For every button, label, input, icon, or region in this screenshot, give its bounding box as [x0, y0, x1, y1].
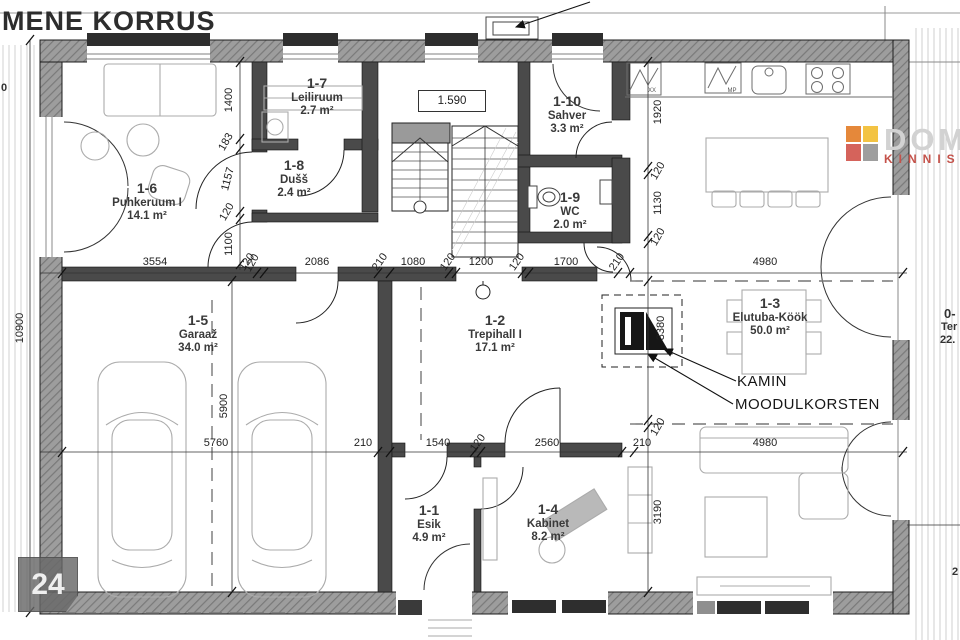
room-label-1-9: 1-9WC2.0 m² — [553, 190, 586, 231]
terrace-room-area: 22. — [940, 334, 955, 346]
dimension-label: 210 — [354, 437, 372, 449]
fireplace — [602, 295, 682, 367]
logo-square — [863, 126, 878, 142]
dimension-label: 4980 — [753, 437, 777, 449]
room-label-1-5: 1-5Garaaž34.0 m² — [178, 313, 218, 354]
room-label-1-1: 1-1Esik4.9 m² — [412, 503, 445, 544]
terrace-room-id: 0- — [944, 306, 956, 321]
floorplan-page: MENE KORRUS 1-1Esik4.9 m²1-2Trepihall I1… — [0, 0, 960, 640]
dimension-label: 4980 — [753, 256, 777, 268]
room-label-1-4: 1-4Kabinet8.2 m² — [527, 502, 569, 543]
dimension-label: 5900 — [218, 394, 230, 418]
dimension-label: 1400 — [223, 88, 235, 112]
room-label-1-10: 1-10Sahver3.3 m² — [548, 94, 586, 135]
logo-square — [846, 126, 861, 142]
wc-sink-icon — [600, 180, 612, 204]
stair-level-box: 1.590 — [418, 90, 486, 112]
logo-square — [863, 144, 878, 161]
dimension-label: 5760 — [204, 437, 228, 449]
dimension-label: 3380 — [655, 316, 667, 340]
car-icon — [98, 362, 186, 597]
dimension-label: 1920 — [652, 100, 664, 124]
dimension-label: 1540 — [426, 437, 450, 449]
dimension-label: 3190 — [652, 500, 664, 524]
dimension-label: 2560 — [535, 437, 559, 449]
appliance-label: XX — [648, 88, 656, 94]
fireplace-leader-arrows — [648, 349, 736, 404]
room-label-1-3: 1-3Elutuba-Köök50.0 m² — [733, 296, 808, 337]
dimension-label: 1080 — [401, 256, 425, 268]
dimension-label: 1100 — [223, 232, 235, 256]
kamin-annotation: KAMIN — [737, 373, 787, 390]
dimension-label: 2086 — [305, 256, 329, 268]
toilet-icon — [528, 186, 537, 208]
room-label-1-8: 1-8Dušš2.4 m² — [277, 158, 310, 199]
kitchen-counter — [625, 63, 893, 97]
page-title: MENE KORRUS — [2, 6, 216, 37]
dimension-label: 3554 — [143, 256, 167, 268]
dimension-label: 1130 — [652, 191, 664, 215]
dimension-label: 1700 — [554, 256, 578, 268]
dimension-label: 210 — [633, 437, 651, 449]
partial-dim-top-left: 0 — [1, 82, 7, 94]
logo-subtitle: KINNIS — [884, 152, 960, 166]
moodulkorsten-annotation: MOODULKORSTEN — [735, 396, 880, 413]
appliance-label: MP — [728, 88, 737, 94]
sink-icon — [752, 66, 786, 94]
dimension-label: 1200 — [469, 256, 493, 268]
room-label-1-2: 1-2Trepihall I17.1 m² — [468, 313, 522, 354]
logo-squares-icon — [846, 126, 879, 162]
page-number-badge: 24 — [18, 557, 78, 612]
terrace-room-name: Ter — [941, 321, 957, 333]
bottom-windows — [396, 544, 833, 636]
staircase — [392, 123, 518, 257]
room-label-1-6: 1-6Puhkeruum I14.1 m² — [112, 181, 182, 222]
car-icon — [238, 362, 326, 597]
partial-dim-bottom-right: 2 — [952, 566, 958, 578]
dimension-label: 10900 — [14, 313, 26, 344]
logo-square — [846, 144, 861, 161]
room-label-1-7: 1-7Leiliruum2.7 m² — [291, 76, 343, 117]
